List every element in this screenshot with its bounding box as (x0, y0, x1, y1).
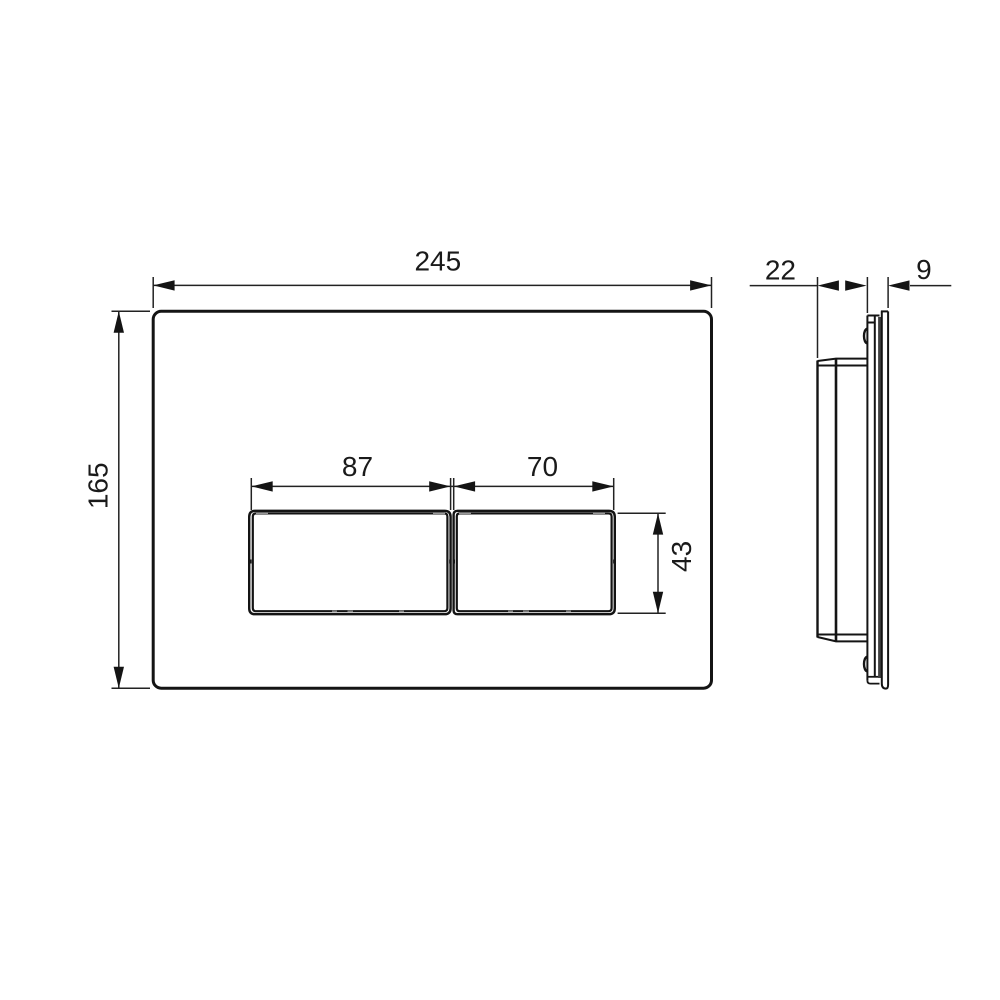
svg-text:87: 87 (342, 451, 373, 482)
svg-text:9: 9 (916, 254, 932, 285)
svg-text:245: 245 (414, 246, 461, 277)
svg-text:22: 22 (765, 255, 796, 286)
svg-text:165: 165 (83, 462, 114, 509)
svg-text:43: 43 (666, 541, 697, 572)
svg-text:70: 70 (527, 451, 558, 482)
